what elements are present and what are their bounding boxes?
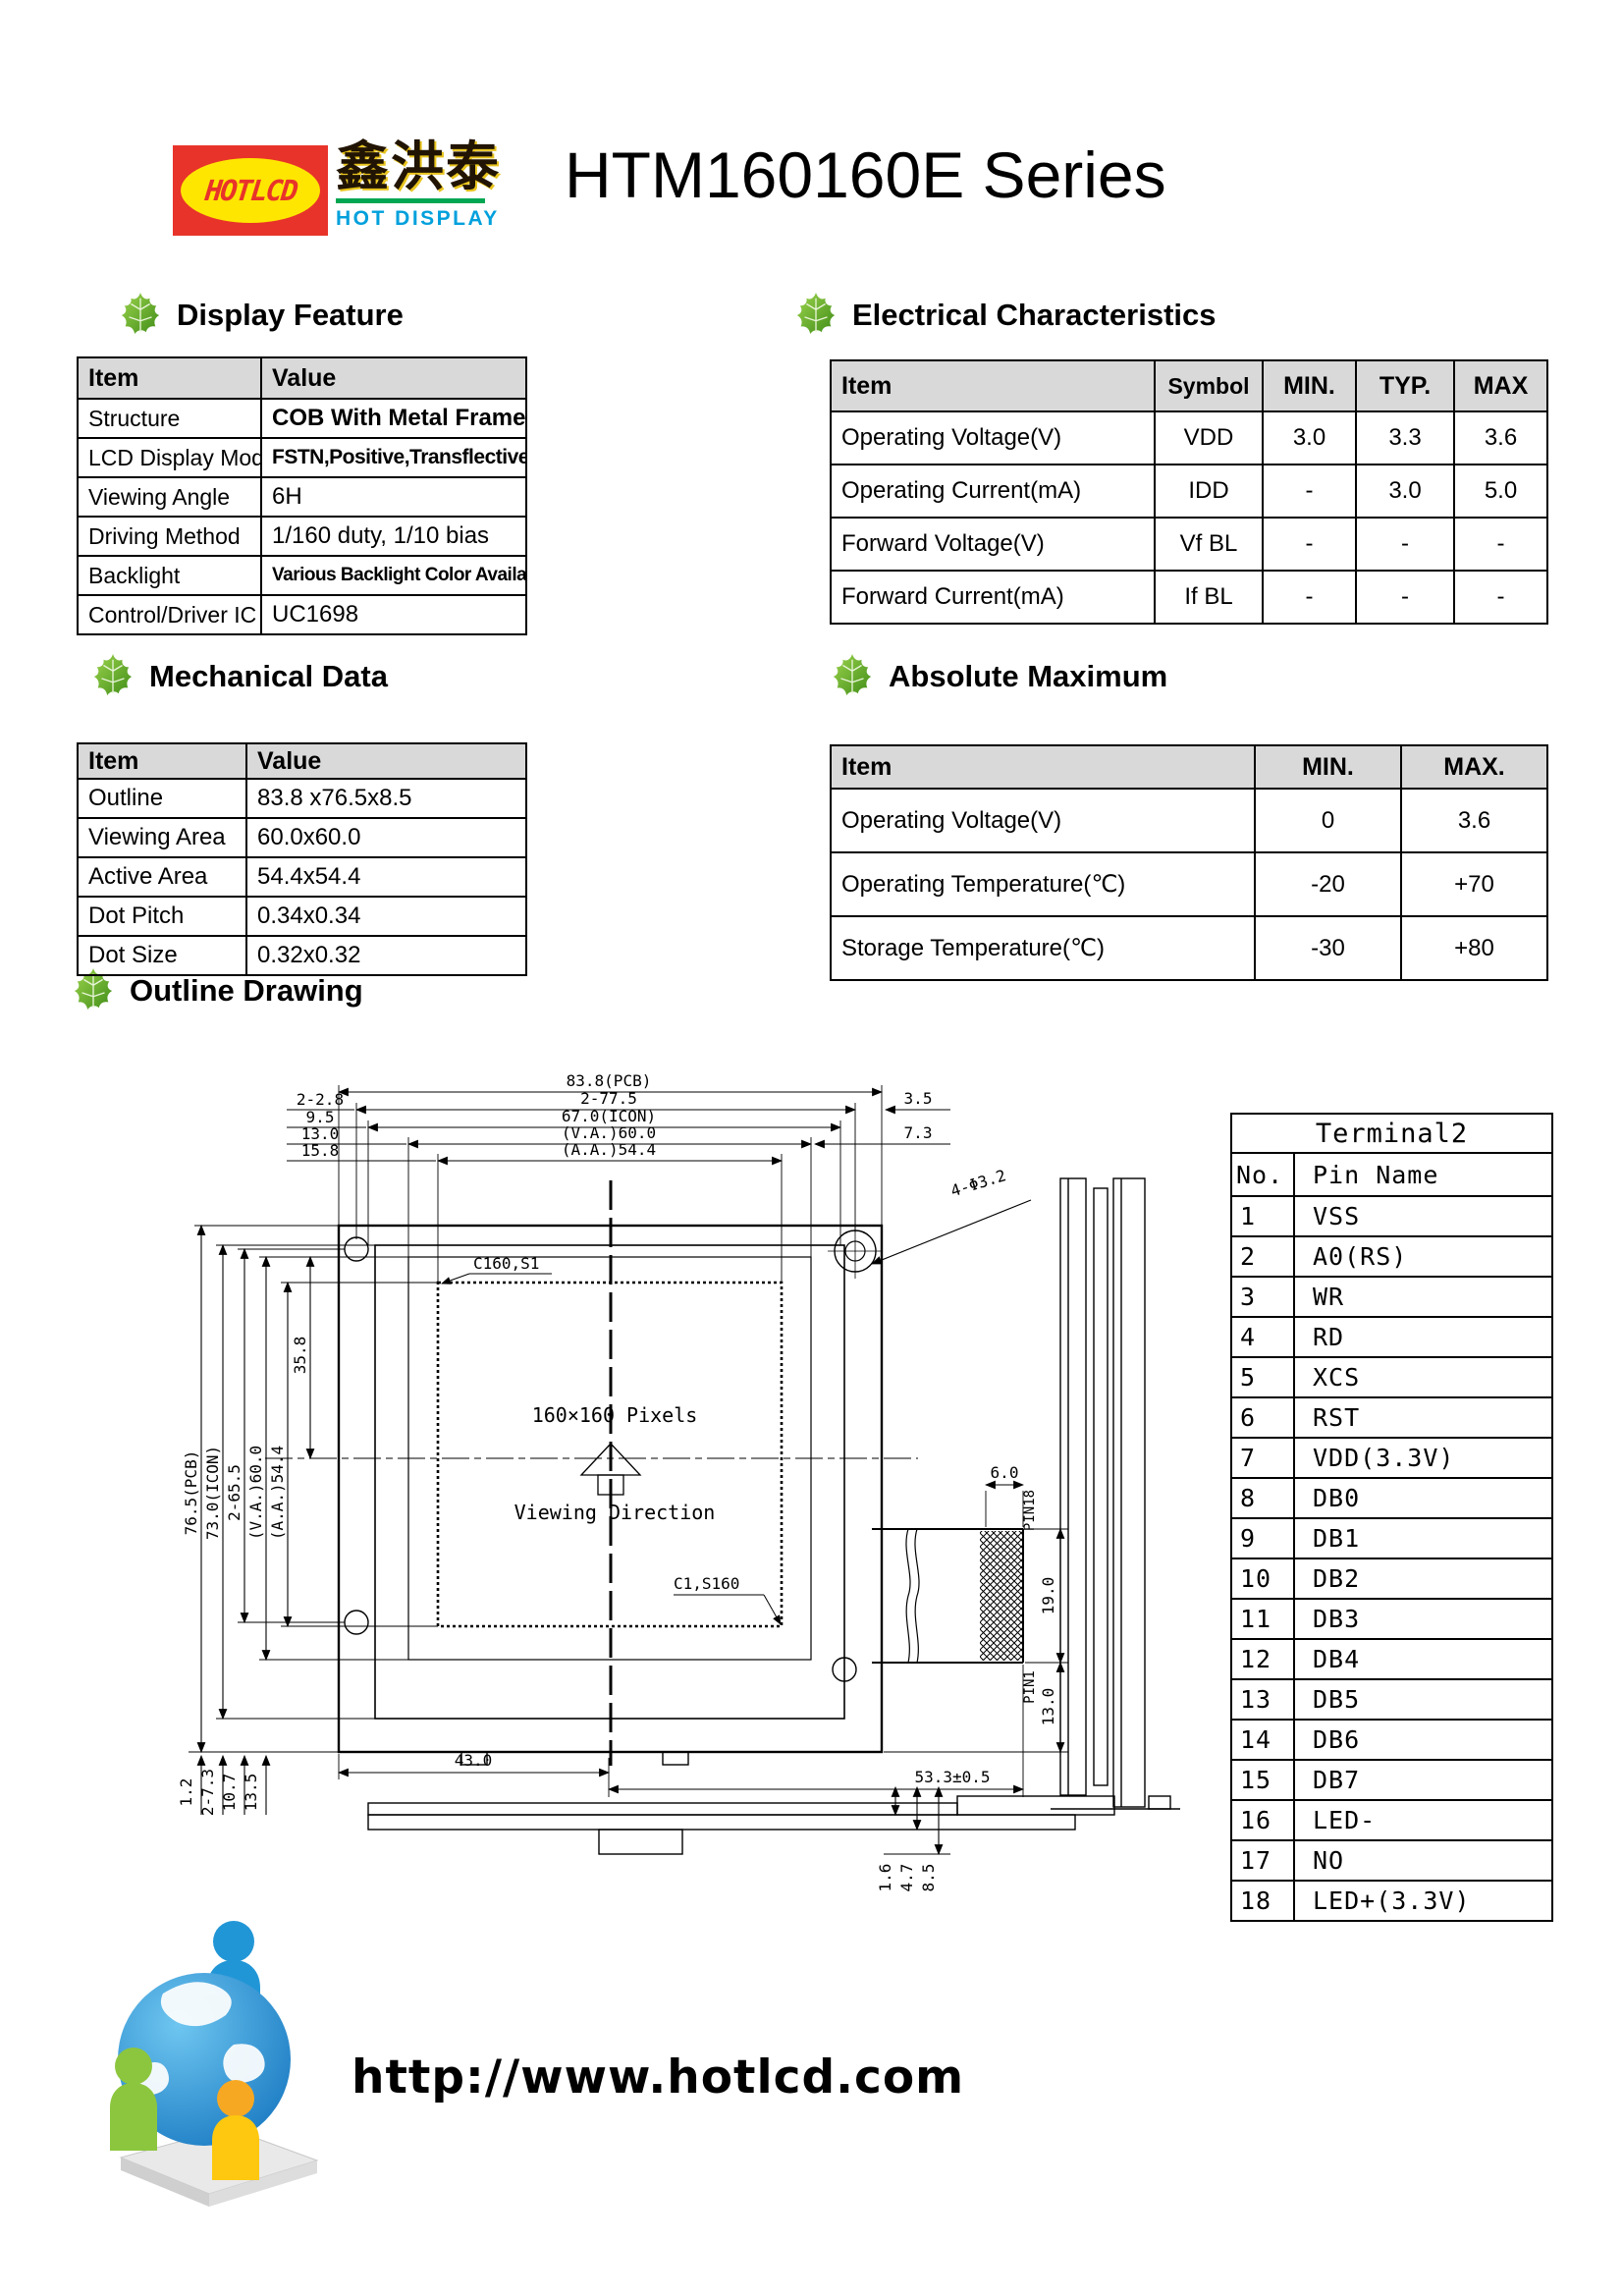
col-header: MAX [1454, 360, 1547, 411]
dim-label: (A.A.)54.4 [562, 1140, 656, 1159]
pin-row: 13DB5 [1231, 1679, 1552, 1720]
col-header: Symbol [1155, 360, 1263, 411]
logo-brand-text: HOTLCD [203, 174, 298, 207]
dim-label: 2-65.5 [225, 1464, 243, 1521]
section-title: Mechanical Data [149, 659, 388, 694]
pin-row: 3WR [1231, 1277, 1552, 1317]
page-title: HTM160160E Series [565, 137, 1166, 212]
section-title: Outline Drawing [130, 973, 363, 1009]
table-row: Operating Temperature(℃)-20+70 [831, 852, 1547, 916]
dim-label: 4.7 [897, 1864, 916, 1892]
absolute-maximum-table: ItemMIN.MAX. Operating Voltage(V)03.6 Op… [830, 744, 1548, 981]
section-title: Absolute Maximum [889, 659, 1167, 694]
company-logo: HOTLCD [173, 145, 328, 236]
pin-label: PIN1 [1022, 1670, 1038, 1704]
dim-label: 6.0 [991, 1463, 1019, 1482]
leaf-icon [90, 652, 135, 701]
dim-label: 13.0 [1039, 1688, 1057, 1726]
dim-label: 73.0(ICON) [203, 1446, 222, 1540]
outline-drawing: 83.8(PCB) 2-77.5 67.0(ICON) (V.A.)60.0 (… [128, 1031, 1227, 1974]
table-row: Forward Current(mA)If BL--- [831, 571, 1547, 624]
col-header: Item [831, 745, 1255, 789]
hole-callout-label: 4-Φ3.2 [948, 1166, 1008, 1200]
col-header: Pin Name [1294, 1153, 1552, 1196]
pin-row: 8DB0 [1231, 1478, 1552, 1518]
dim-label: 3.5 [904, 1089, 933, 1108]
table-row: Outline83.8 x76.5x8.5 [78, 779, 526, 818]
dimension-lines [201, 1092, 1060, 1854]
pin-row: 12DB4 [1231, 1639, 1552, 1679]
pin-row: 17NO [1231, 1840, 1552, 1881]
dim-label: 43.0 [455, 1751, 493, 1770]
fpc-tail [872, 1529, 1023, 1663]
dim-label: 83.8(PCB) [567, 1071, 652, 1090]
leaf-icon [118, 291, 163, 340]
logo-subtitle-text: HOT DISPLAY [336, 207, 500, 231]
col-header: MIN. [1255, 745, 1401, 789]
dim-label: 1.2 [177, 1778, 195, 1807]
table-row: Dot Pitch0.34x0.34 [78, 897, 526, 936]
pin-row: 10DB2 [1231, 1558, 1552, 1599]
col-header: Item [78, 357, 261, 399]
pin-row: 6RST [1231, 1397, 1552, 1438]
pin-row: 2A0(RS) [1231, 1236, 1552, 1277]
pin-row: 9DB1 [1231, 1518, 1552, 1558]
dim-label: 1.6 [876, 1864, 894, 1892]
table-row: StructureCOB With Metal Frame [78, 399, 526, 438]
dim-label: 7.3 [904, 1123, 933, 1142]
display-feature-table: ItemValue StructureCOB With Metal Frame … [77, 356, 527, 635]
pixels-label: 160×160 Pixels [532, 1403, 698, 1427]
pin-row: 16LED- [1231, 1800, 1552, 1840]
pin-row: 11DB3 [1231, 1599, 1552, 1639]
person-green [110, 2048, 157, 2151]
table-row: Control/Driver ICUC1698 [78, 595, 526, 634]
dim-label: 8.5 [919, 1864, 938, 1892]
col-header: Item [78, 743, 246, 779]
dim-label: (V.A.)60.0 [246, 1446, 265, 1540]
logo-green-bar [336, 198, 485, 203]
viewing-direction-label: Viewing Direction [514, 1501, 716, 1524]
logo-ellipse: HOTLCD [181, 158, 320, 223]
table-row: Forward Voltage(V)Vf BL--- [831, 518, 1547, 571]
bottom-side-view [368, 1796, 1114, 1854]
table-row: Operating Voltage(V)03.6 [831, 789, 1547, 852]
fpc-stiffener-hatch [980, 1531, 1022, 1661]
table-row: Dot Size0.32x0.32 [78, 936, 526, 975]
dim-label: 76.5(PCB) [182, 1450, 200, 1536]
col-header: No. [1231, 1153, 1294, 1196]
col-header: Value [261, 357, 526, 399]
table-row: Storage Temperature(℃)-30+80 [831, 916, 1547, 980]
dim-label: 13.5 [242, 1774, 260, 1812]
section-mechanical: Mechanical Data [90, 652, 388, 701]
table-row: BacklightVarious Backlight Color Availab… [78, 556, 526, 595]
table-row: Driving Method1/160 duty, 1/10 bias [78, 517, 526, 556]
pin-row: 5XCS [1231, 1357, 1552, 1397]
pin-row: 7VDD(3.3V) [1231, 1438, 1552, 1478]
dim-label: 2-7.3 [198, 1769, 217, 1816]
electrical-table: Item Symbol MIN. TYP. MAX Operating Volt… [830, 359, 1548, 625]
pin-row: 18LED+(3.3V) [1231, 1881, 1552, 1921]
col-header: Value [246, 743, 526, 779]
leaf-icon [793, 291, 839, 340]
pin-row: 1VSS [1231, 1196, 1552, 1236]
dim-label: 53.3±0.5 [914, 1768, 990, 1786]
pin-row: 14DB6 [1231, 1720, 1552, 1760]
section-electrical: Electrical Characteristics [793, 291, 1217, 340]
table-row: Viewing Angle6H [78, 477, 526, 517]
dim-label: 10.7 [220, 1774, 239, 1812]
table-row: Active Area54.4x54.4 [78, 857, 526, 897]
table-row: Viewing Area60.0x60.0 [78, 818, 526, 857]
mounting-hole [345, 1611, 368, 1634]
dim-label: 19.0 [1039, 1577, 1057, 1615]
table-row: Operating Current(mA)IDD-3.05.0 [831, 465, 1547, 518]
dim-label: 35.8 [291, 1337, 309, 1375]
dim-label: 2-77.5 [580, 1089, 637, 1108]
globe-logo [86, 1917, 332, 2212]
table-row: Operating Voltage(V)VDD3.03.33.6 [831, 411, 1547, 465]
leaf-icon [830, 652, 875, 701]
section-absolute-maximum: Absolute Maximum [830, 652, 1167, 701]
drawing-labels: 83.8(PCB) 2-77.5 67.0(ICON) (V.A.)60.0 (… [177, 1071, 1057, 1891]
col-header: MIN. [1263, 360, 1356, 411]
section-display-feature: Display Feature [118, 291, 404, 340]
dim-label: 2-2.8 [297, 1090, 344, 1109]
right-edge-view [1051, 1178, 1180, 1809]
extension-lines [189, 1085, 1068, 1854]
corner-label: C1,S160 [674, 1574, 739, 1593]
pin-label: PIN18 [1022, 1490, 1038, 1531]
pin-row: 4RD [1231, 1317, 1552, 1357]
corner-label: C160,S1 [473, 1254, 539, 1273]
logo-chinese-text: 鑫洪泰 [336, 139, 501, 195]
datasheet-page: HOTLCD 鑫洪泰 HOT DISPLAY HTM160160E Series… [0, 0, 1623, 2296]
dim-label: 15.8 [301, 1141, 340, 1160]
col-header: TYP. [1356, 360, 1454, 411]
plan-view [265, 1180, 918, 1766]
table-row: LCD Display ModeFSTN,Positive,Transflect… [78, 438, 526, 477]
dim-label: (A.A.)54.4 [268, 1446, 287, 1540]
col-header: MAX. [1401, 745, 1547, 789]
mechanical-table: ItemValue Outline83.8 x76.5x8.5 Viewing … [77, 742, 527, 976]
pin-row: 15DB7 [1231, 1760, 1552, 1800]
person-orange [212, 2080, 259, 2180]
col-header: Item [831, 360, 1155, 411]
section-title: Display Feature [177, 298, 404, 333]
terminal-title: Terminal2 [1231, 1114, 1552, 1153]
terminal-pin-table: Terminal2 No.Pin Name 1VSS 2A0(RS) 3WR 4… [1230, 1113, 1553, 1922]
section-title: Electrical Characteristics [852, 298, 1217, 333]
website-url: http://www.hotlcd.com [352, 2050, 964, 2105]
